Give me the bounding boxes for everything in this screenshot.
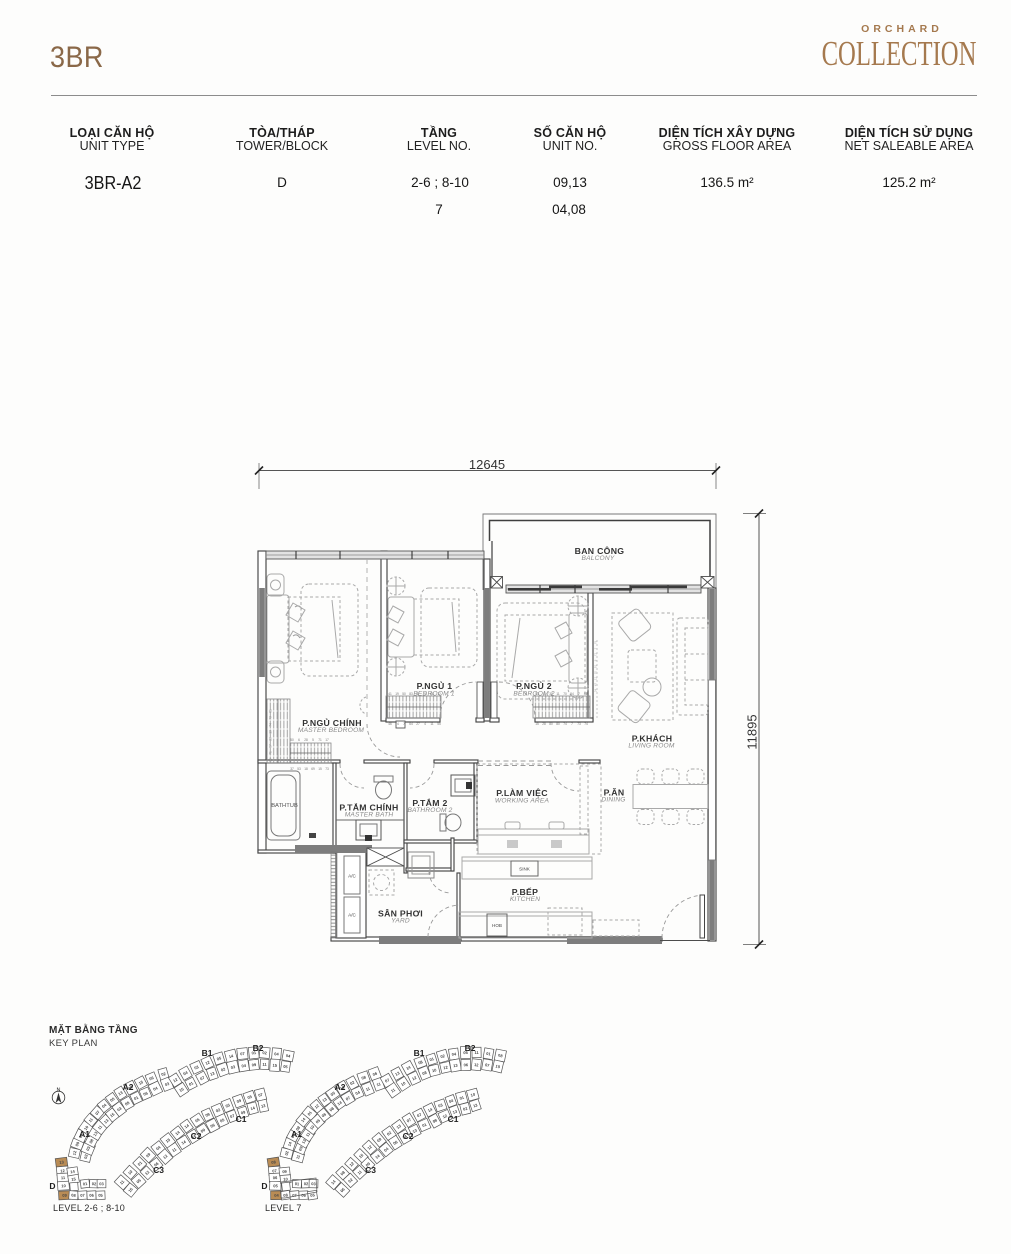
svg-text:74: 74 — [584, 722, 588, 726]
svg-text:C1: C1 — [448, 1114, 459, 1124]
svg-text:A/C: A/C — [348, 913, 356, 918]
svg-text:B2: B2 — [465, 1043, 476, 1053]
svg-text:91: 91 — [594, 665, 598, 669]
svg-text:71: 71 — [318, 738, 322, 742]
svg-text:15: 15 — [318, 767, 322, 771]
svg-text:C1: C1 — [236, 1114, 247, 1124]
svg-text:50: 50 — [290, 738, 294, 742]
svg-text:70: 70 — [563, 692, 567, 696]
svg-text:12: 12 — [437, 692, 441, 696]
svg-text:73: 73 — [325, 767, 329, 771]
svg-text:11: 11 — [430, 722, 434, 726]
svg-text:15: 15 — [535, 722, 539, 726]
svg-text:55: 55 — [437, 722, 441, 726]
svg-text:74: 74 — [269, 723, 273, 727]
svg-text:D: D — [49, 1181, 55, 1191]
svg-text:8: 8 — [594, 659, 598, 661]
svg-text:81: 81 — [269, 709, 273, 713]
svg-text:A2: A2 — [335, 1082, 346, 1092]
svg-text:C2: C2 — [403, 1131, 414, 1141]
svg-text:18: 18 — [304, 767, 308, 771]
svg-text:54: 54 — [570, 692, 574, 696]
svg-text:YARD: YARD — [391, 918, 410, 925]
svg-text:B1: B1 — [414, 1048, 425, 1058]
svg-text:A/C: A/C — [348, 874, 356, 879]
svg-text:WORKING AREA: WORKING AREA — [495, 797, 550, 804]
svg-text:12645: 12645 — [469, 457, 505, 472]
svg-text:41: 41 — [388, 692, 392, 696]
svg-text:13: 13 — [269, 730, 273, 734]
svg-text:C3: C3 — [365, 1165, 376, 1175]
svg-text:30: 30 — [549, 692, 553, 696]
svg-text:MASTER BEDROOM: MASTER BEDROOM — [298, 727, 364, 734]
svg-text:A1: A1 — [291, 1129, 302, 1139]
svg-text:DINING: DINING — [601, 797, 625, 804]
svg-text:7: 7 — [571, 722, 573, 726]
svg-text:70: 70 — [594, 671, 598, 675]
svg-text:6: 6 — [417, 692, 419, 696]
svg-text:71: 71 — [269, 751, 273, 755]
svg-text:47: 47 — [594, 683, 598, 687]
svg-text:19: 19 — [395, 692, 399, 696]
svg-text:BALCONY: BALCONY — [582, 555, 615, 562]
svg-text:87: 87 — [269, 744, 273, 748]
svg-text:11: 11 — [556, 692, 560, 696]
svg-text:73: 73 — [269, 716, 273, 720]
svg-text:74: 74 — [395, 722, 399, 726]
svg-text:80: 80 — [549, 722, 553, 726]
svg-text:12: 12 — [594, 677, 598, 681]
svg-text:8: 8 — [543, 692, 545, 696]
svg-text:MASTER BATH: MASTER BATH — [345, 812, 394, 819]
svg-text:23: 23 — [269, 737, 273, 741]
svg-text:17: 17 — [325, 738, 329, 742]
svg-text:7: 7 — [594, 647, 598, 649]
svg-text:BATHTUB: BATHTUB — [271, 803, 298, 809]
svg-text:50: 50 — [402, 692, 406, 696]
svg-text:53: 53 — [535, 692, 539, 696]
svg-text:64: 64 — [409, 722, 413, 726]
svg-text:D: D — [261, 1181, 267, 1191]
svg-text:46: 46 — [388, 722, 392, 726]
svg-text:C3: C3 — [153, 1165, 164, 1175]
svg-text:83: 83 — [409, 692, 413, 696]
svg-text:73: 73 — [577, 722, 581, 726]
svg-text:B2: B2 — [253, 1043, 264, 1053]
svg-text:5: 5 — [312, 738, 314, 742]
svg-text:72: 72 — [584, 692, 588, 696]
svg-text:N: N — [57, 1088, 61, 1094]
svg-text:KITCHEN: KITCHEN — [510, 896, 540, 903]
svg-text:BEDROOM 1: BEDROOM 1 — [413, 691, 455, 698]
svg-text:SINK: SINK — [519, 867, 531, 872]
svg-text:B1: B1 — [202, 1048, 213, 1058]
svg-text:P.NGỦ 2: P.NGỦ 2 — [516, 680, 552, 691]
svg-text:HOB: HOB — [492, 923, 502, 928]
svg-text:A1: A1 — [79, 1129, 90, 1139]
svg-text:39: 39 — [269, 758, 273, 762]
svg-text:69: 69 — [311, 767, 315, 771]
svg-text:72: 72 — [594, 653, 598, 657]
svg-text:68: 68 — [430, 692, 434, 696]
svg-text:28: 28 — [304, 738, 308, 742]
svg-text:27: 27 — [416, 722, 420, 726]
svg-text:11895: 11895 — [745, 714, 760, 749]
svg-text:80: 80 — [556, 722, 560, 726]
svg-text:BATHROOM 2: BATHROOM 2 — [407, 807, 452, 814]
svg-text:9: 9 — [424, 692, 426, 696]
svg-text:03: 03 — [99, 1181, 104, 1186]
svg-text:6: 6 — [298, 738, 300, 742]
svg-text:24: 24 — [594, 689, 598, 693]
svg-text:28: 28 — [542, 722, 546, 726]
svg-text:C2: C2 — [191, 1131, 202, 1141]
svg-text:7: 7 — [403, 722, 405, 726]
svg-text:A2: A2 — [123, 1082, 134, 1092]
svg-text:53: 53 — [297, 767, 301, 771]
svg-text:37: 37 — [290, 767, 294, 771]
svg-text:4: 4 — [424, 722, 426, 726]
svg-text:74: 74 — [563, 722, 567, 726]
svg-text:7: 7 — [578, 692, 580, 696]
svg-text:LIVING ROOM: LIVING ROOM — [628, 743, 674, 750]
svg-text:P.NGỦ 1: P.NGỦ 1 — [417, 680, 453, 691]
svg-text:79: 79 — [594, 641, 598, 645]
